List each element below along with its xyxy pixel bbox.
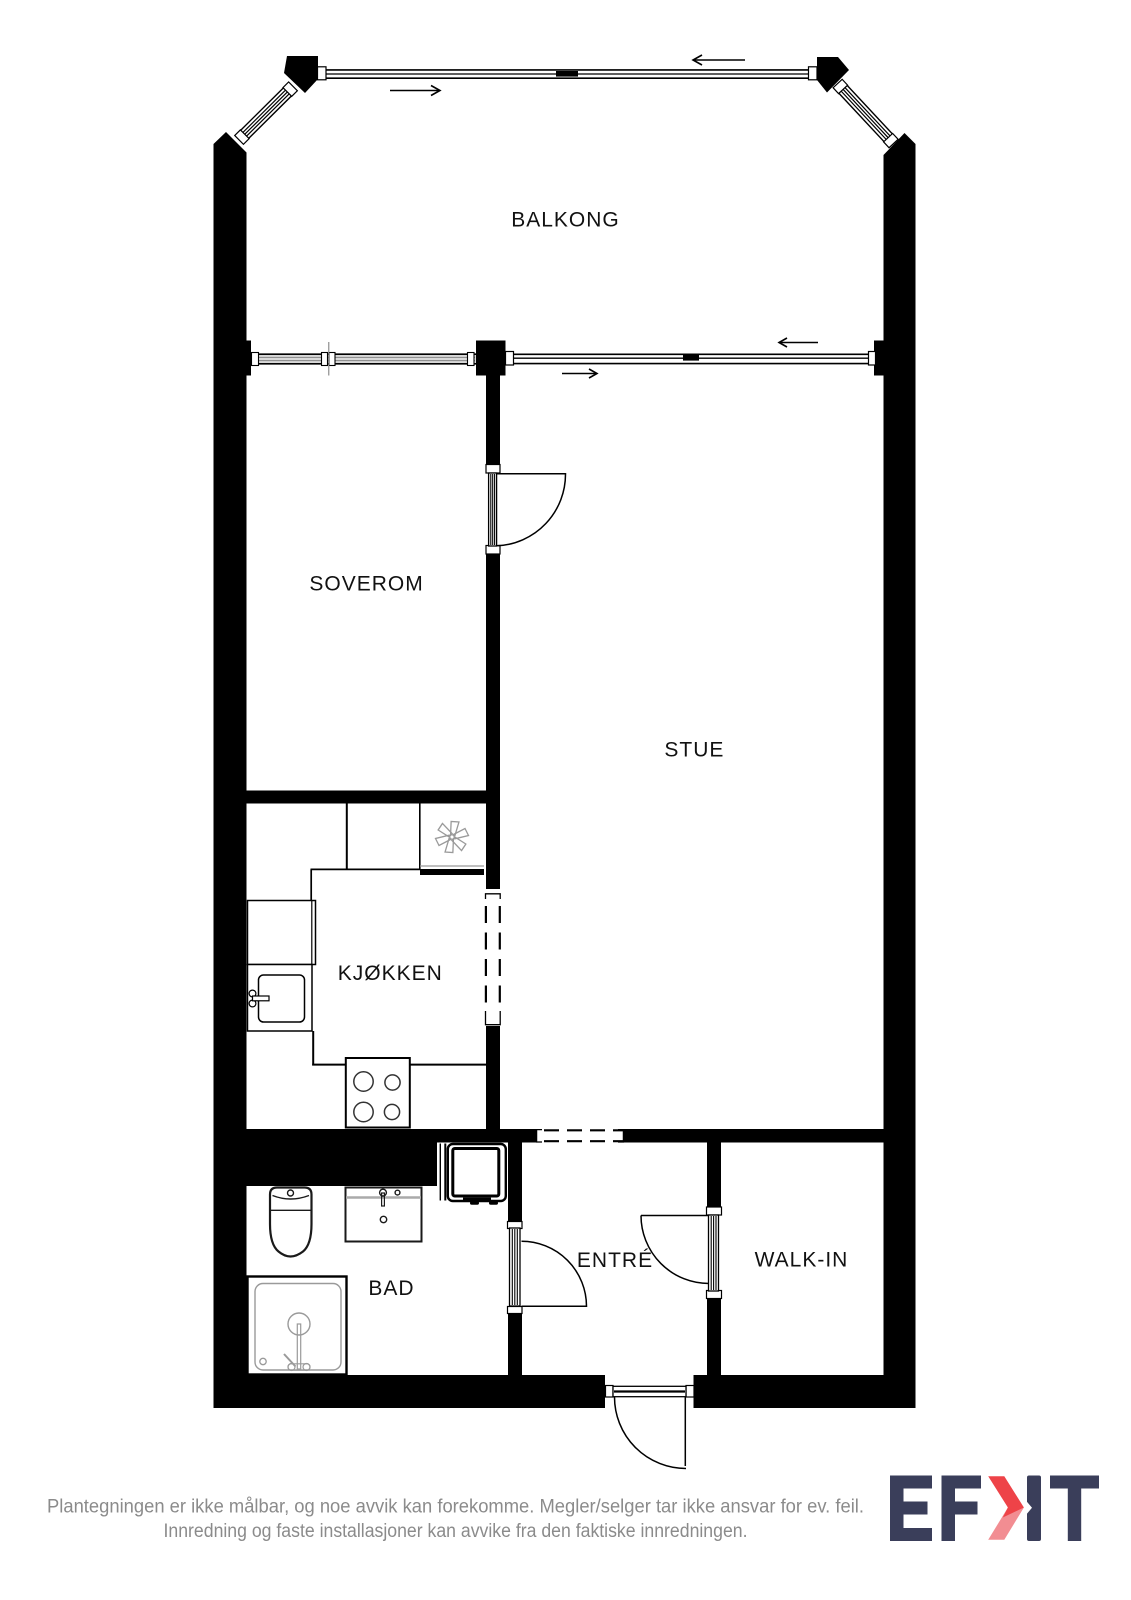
svg-text:SOVEROM: SOVEROM [309, 573, 423, 596]
svg-text:BAD: BAD [368, 1277, 414, 1300]
svg-text:ENTRÉ: ENTRÉ [577, 1249, 653, 1272]
svg-text:BALKONG: BALKONG [511, 208, 620, 231]
svg-text:STUE: STUE [664, 739, 724, 762]
svg-text:KJØKKEN: KJØKKEN [338, 962, 443, 985]
svg-text:Innredning og faste installasj: Innredning og faste installasjoner kan a… [164, 1521, 748, 1542]
svg-text:WALK-IN: WALK-IN [755, 1249, 849, 1272]
svg-text:Plantegningen er ikke målbar,: Plantegningen er ikke målbar, og noe avv… [47, 1497, 864, 1518]
